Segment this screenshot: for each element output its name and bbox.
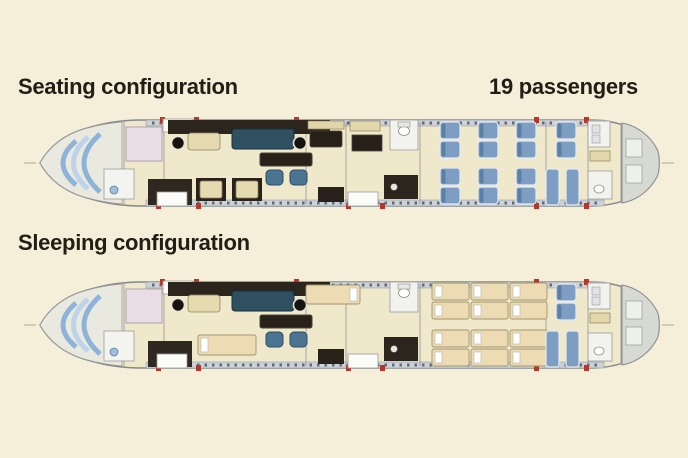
toilet-tank — [398, 122, 410, 127]
seat-backrest — [558, 286, 562, 300]
tail-cone — [622, 123, 659, 203]
tail-fixture — [626, 165, 642, 183]
seat-backrest — [558, 305, 562, 319]
bed-pillow — [435, 333, 442, 344]
vanity — [592, 287, 600, 295]
toilet — [399, 127, 410, 136]
entry-door — [157, 354, 187, 368]
seat-backrest — [442, 124, 446, 138]
toilet — [594, 347, 604, 355]
divan-seat — [546, 331, 559, 367]
credenza — [318, 349, 344, 364]
club-chair — [236, 181, 258, 198]
round-table — [172, 299, 185, 312]
club-chair — [200, 181, 222, 198]
seat-backrest — [480, 189, 484, 203]
sideboard — [350, 121, 380, 131]
galley-sink — [391, 184, 398, 191]
door-marker — [584, 365, 589, 371]
seat-backrest — [442, 189, 446, 203]
seat-backrest — [518, 124, 522, 138]
lounge-sofa — [232, 129, 294, 149]
lounge-chair — [290, 332, 307, 347]
bed-pillow — [474, 286, 481, 297]
seat-backrest — [480, 143, 484, 157]
lounge-chair — [266, 170, 283, 185]
forward-lavatory — [104, 169, 134, 199]
seat-backrest — [442, 170, 446, 184]
bed-pillow — [474, 305, 481, 316]
bed-pillow — [513, 352, 520, 363]
mid-table — [352, 135, 382, 151]
divan-seat — [566, 331, 579, 367]
tail-fixture — [626, 327, 642, 345]
forward-sofa — [188, 295, 220, 312]
floorplan-seating — [24, 117, 674, 209]
aft-galley — [384, 175, 418, 199]
entry-door — [157, 192, 187, 206]
lavatory-sink — [110, 186, 118, 194]
door-marker — [196, 365, 201, 371]
bed-pillow — [435, 286, 442, 297]
forward-sofa — [188, 133, 220, 150]
vanity — [592, 135, 600, 143]
tail-cone — [622, 285, 659, 365]
credenza — [318, 187, 344, 202]
forward-wardrobe — [126, 127, 162, 161]
lounge-chair — [266, 332, 283, 347]
door-marker — [380, 365, 385, 371]
passenger-count-label: 19 passengers — [489, 74, 638, 100]
dinette-table — [310, 131, 342, 147]
forward-lavatory — [104, 331, 134, 361]
aft-cabinet — [590, 313, 610, 323]
conference-table — [260, 315, 312, 328]
seat-backrest — [558, 143, 562, 157]
seat-backrest — [480, 170, 484, 184]
round-table — [294, 299, 307, 312]
bed-pillow — [201, 338, 208, 352]
lavatory-sink — [110, 348, 118, 356]
round-table — [294, 137, 307, 150]
door-marker — [380, 203, 385, 209]
galley-sink — [391, 346, 398, 353]
bed-pillow — [513, 286, 520, 297]
seat-backrest — [442, 143, 446, 157]
lounge-chair — [290, 170, 307, 185]
door-marker — [196, 203, 201, 209]
tail-fixture — [626, 301, 642, 319]
vanity — [592, 125, 600, 133]
round-table — [172, 137, 185, 150]
divan-seat — [546, 169, 559, 205]
seat-backrest — [518, 143, 522, 157]
dinette-bench — [308, 121, 344, 129]
bed-pillow — [474, 333, 481, 344]
floorplan-sleeping — [24, 279, 674, 371]
forward-wardrobe — [126, 289, 162, 323]
mid-door — [348, 354, 378, 368]
aft-cabinet — [590, 151, 610, 161]
seat-backrest — [518, 170, 522, 184]
seating-configuration-title: Seating configuration — [18, 74, 238, 100]
seat-backrest — [518, 189, 522, 203]
tail-fixture — [626, 139, 642, 157]
bed-pillow — [513, 333, 520, 344]
aircraft-floorplans — [0, 0, 688, 458]
toilet-tank — [398, 284, 410, 289]
toilet — [399, 289, 410, 298]
bed-pillow — [513, 305, 520, 316]
seat-backrest — [558, 124, 562, 138]
seat-backrest — [480, 124, 484, 138]
mid-door — [348, 192, 378, 206]
vanity — [592, 297, 600, 305]
bed-pillow — [350, 288, 357, 301]
lounge-sofa — [232, 291, 294, 311]
bed-pillow — [435, 305, 442, 316]
toilet — [594, 185, 604, 193]
conference-table — [260, 153, 312, 166]
sleeping-configuration-title: Sleeping configuration — [18, 230, 250, 256]
bed-pillow — [474, 352, 481, 363]
aft-galley — [384, 337, 418, 361]
door-marker — [584, 203, 589, 209]
bed-pillow — [435, 352, 442, 363]
divan-seat — [566, 169, 579, 205]
page: Seating configuration 19 passengers Slee… — [0, 0, 688, 458]
